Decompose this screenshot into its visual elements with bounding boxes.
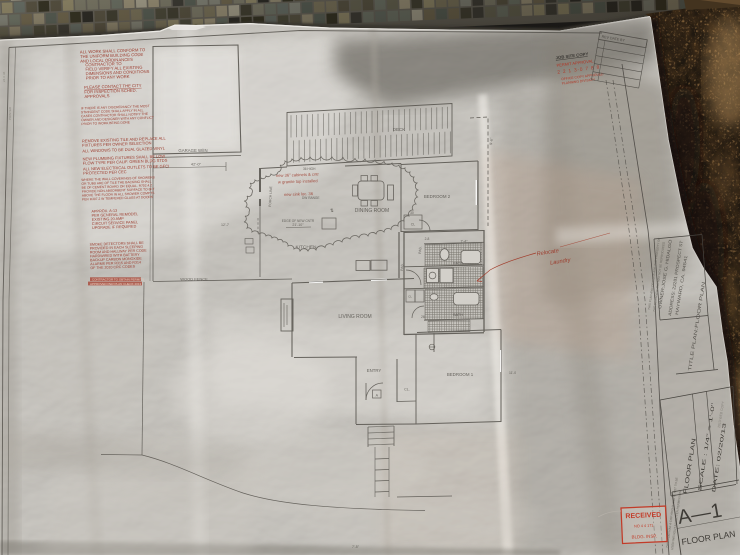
svg-text:42'-0": 42'-0" — [191, 162, 202, 167]
svg-text:PAS.: PAS. — [418, 246, 422, 254]
svg-text:30: 30 — [410, 211, 414, 215]
svg-text:BEDROOM 2: BEDROOM 2 — [424, 194, 451, 199]
svg-text:CL: CL — [408, 295, 412, 299]
svg-text:7'-5": 7'-5" — [352, 545, 360, 549]
svg-text:EDGE OF NEW CNTR: EDGE OF NEW CNTR — [282, 219, 315, 223]
svg-text:12'-7: 12'-7 — [221, 223, 229, 227]
svg-text:WOOD FENCE: WOOD FENCE — [180, 277, 208, 282]
svg-text:24 X 36: 24 X 36 — [2, 71, 6, 82]
svg-text:11'-0: 11'-0 — [509, 371, 516, 375]
svg-text:KITCHEN: KITCHEN — [295, 245, 317, 251]
svg-text:NO 4 4 171: NO 4 4 171 — [634, 524, 654, 529]
svg-text:APPROVED PER PLAN CHECK 2013: APPROVED PER PLAN CHECK 2013 — [90, 282, 142, 286]
svg-text:BATH: BATH — [453, 313, 463, 317]
svg-text:21'-10": 21'-10" — [292, 223, 304, 227]
svg-text:⇅: ⇅ — [330, 208, 334, 213]
svg-text:GARAGE W/IN: GARAGE W/IN — [178, 148, 207, 153]
svg-text:LIVING ROOM: LIVING ROOM — [338, 314, 371, 320]
svg-text:CONTRACTOR TO OBTAIN PERMITS: CONTRACTOR TO OBTAIN PERMITS — [92, 277, 144, 281]
svg-text:PRINTED: PRINTED — [8, 106, 12, 120]
svg-text:ENTRY: ENTRY — [367, 368, 382, 373]
svg-text:DW RANGE: DW RANGE — [302, 196, 320, 200]
svg-text:BATH: BATH — [453, 262, 463, 266]
svg-text:36 HIGH: 36 HIGH — [303, 167, 316, 171]
svg-text:2-8: 2-8 — [425, 237, 430, 241]
svg-text:26: 26 — [421, 315, 425, 319]
svg-text:PAS.: PAS. — [400, 263, 404, 271]
svg-text:CL: CL — [411, 223, 416, 227]
svg-text:DECK: DECK — [393, 127, 406, 132]
svg-text:BEDROOM 1: BEDROOM 1 — [447, 372, 474, 377]
svg-text:DINING ROOM: DINING ROOM — [355, 208, 389, 214]
svg-text:CL.: CL. — [404, 388, 410, 392]
svg-text:WHERE THE WALL COVERINGS OF SH: WHERE THE WALL COVERINGS OF SHOWERSOR TU… — [81, 175, 156, 201]
